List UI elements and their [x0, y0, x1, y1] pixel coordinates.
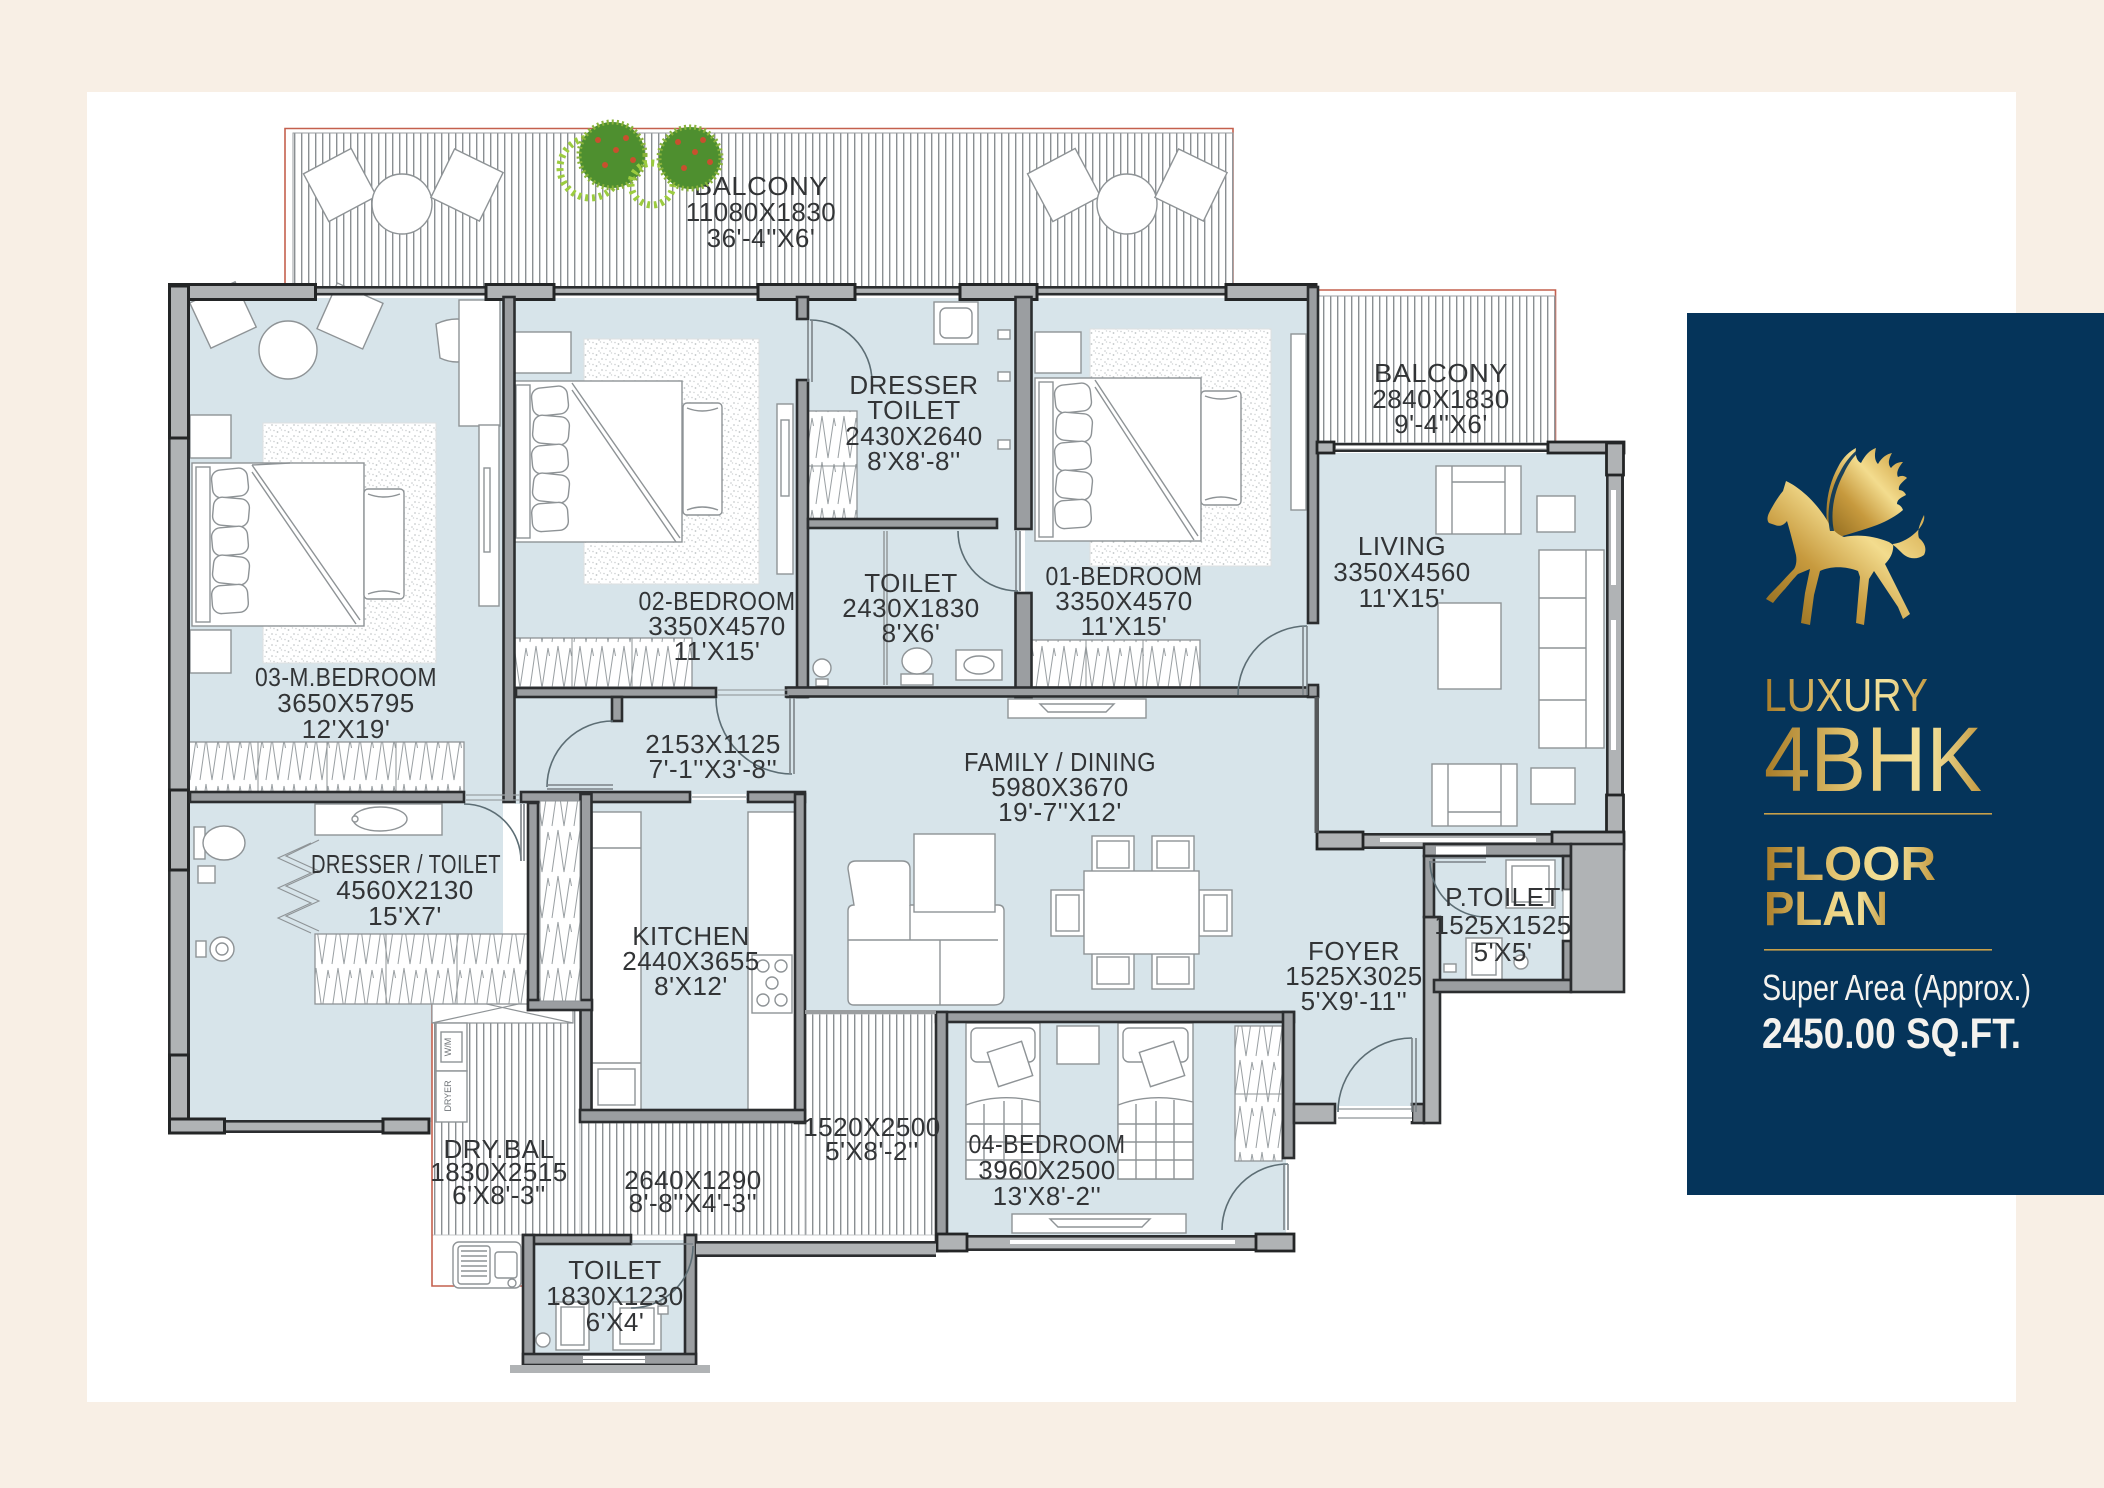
svg-text:6'X4': 6'X4'	[586, 1307, 645, 1337]
svg-text:13'X8'-2'': 13'X8'-2''	[993, 1181, 1102, 1211]
svg-text:6'X8'-3'': 6'X8'-3''	[452, 1180, 546, 1210]
svg-text:9'-4''X6': 9'-4''X6'	[1394, 409, 1488, 439]
svg-text:11'X15': 11'X15'	[1359, 583, 1446, 613]
svg-text:PLAN: PLAN	[1764, 883, 1888, 936]
svg-text:4BHK: 4BHK	[1764, 709, 1982, 811]
svg-text:5'X8'-2'': 5'X8'-2''	[825, 1136, 919, 1166]
svg-text:36'-4''X6': 36'-4''X6'	[707, 223, 816, 253]
svg-text:W/M: W/M	[443, 1038, 453, 1057]
svg-text:11'X15': 11'X15'	[1081, 611, 1168, 641]
svg-text:Super Area (Approx.): Super Area (Approx.)	[1762, 967, 2031, 1008]
svg-text:8'X12': 8'X12'	[654, 971, 728, 1001]
svg-text:19'-7''X12': 19'-7''X12'	[998, 797, 1122, 827]
svg-text:8'-8''X4'-3'': 8'-8''X4'-3''	[629, 1188, 758, 1218]
svg-text:8'X8'-8'': 8'X8'-8''	[867, 446, 961, 476]
svg-text:12'X19': 12'X19'	[302, 714, 391, 744]
svg-text:7'-1''X3'-8'': 7'-1''X3'-8''	[649, 754, 778, 784]
svg-text:5'X5': 5'X5'	[1474, 937, 1533, 967]
svg-text:DRYER: DRYER	[443, 1080, 453, 1112]
svg-text:15'X7': 15'X7'	[368, 901, 442, 931]
svg-text:8'X6': 8'X6'	[882, 618, 941, 648]
svg-text:P.TOILET: P.TOILET	[1445, 882, 1561, 912]
svg-text:5'X9'-11'': 5'X9'-11''	[1301, 986, 1408, 1016]
svg-text:1525X1525: 1525X1525	[1434, 910, 1572, 940]
svg-text:2450.00 SQ.FT.: 2450.00 SQ.FT.	[1762, 1010, 2021, 1058]
svg-text:11'X15': 11'X15'	[674, 636, 761, 666]
